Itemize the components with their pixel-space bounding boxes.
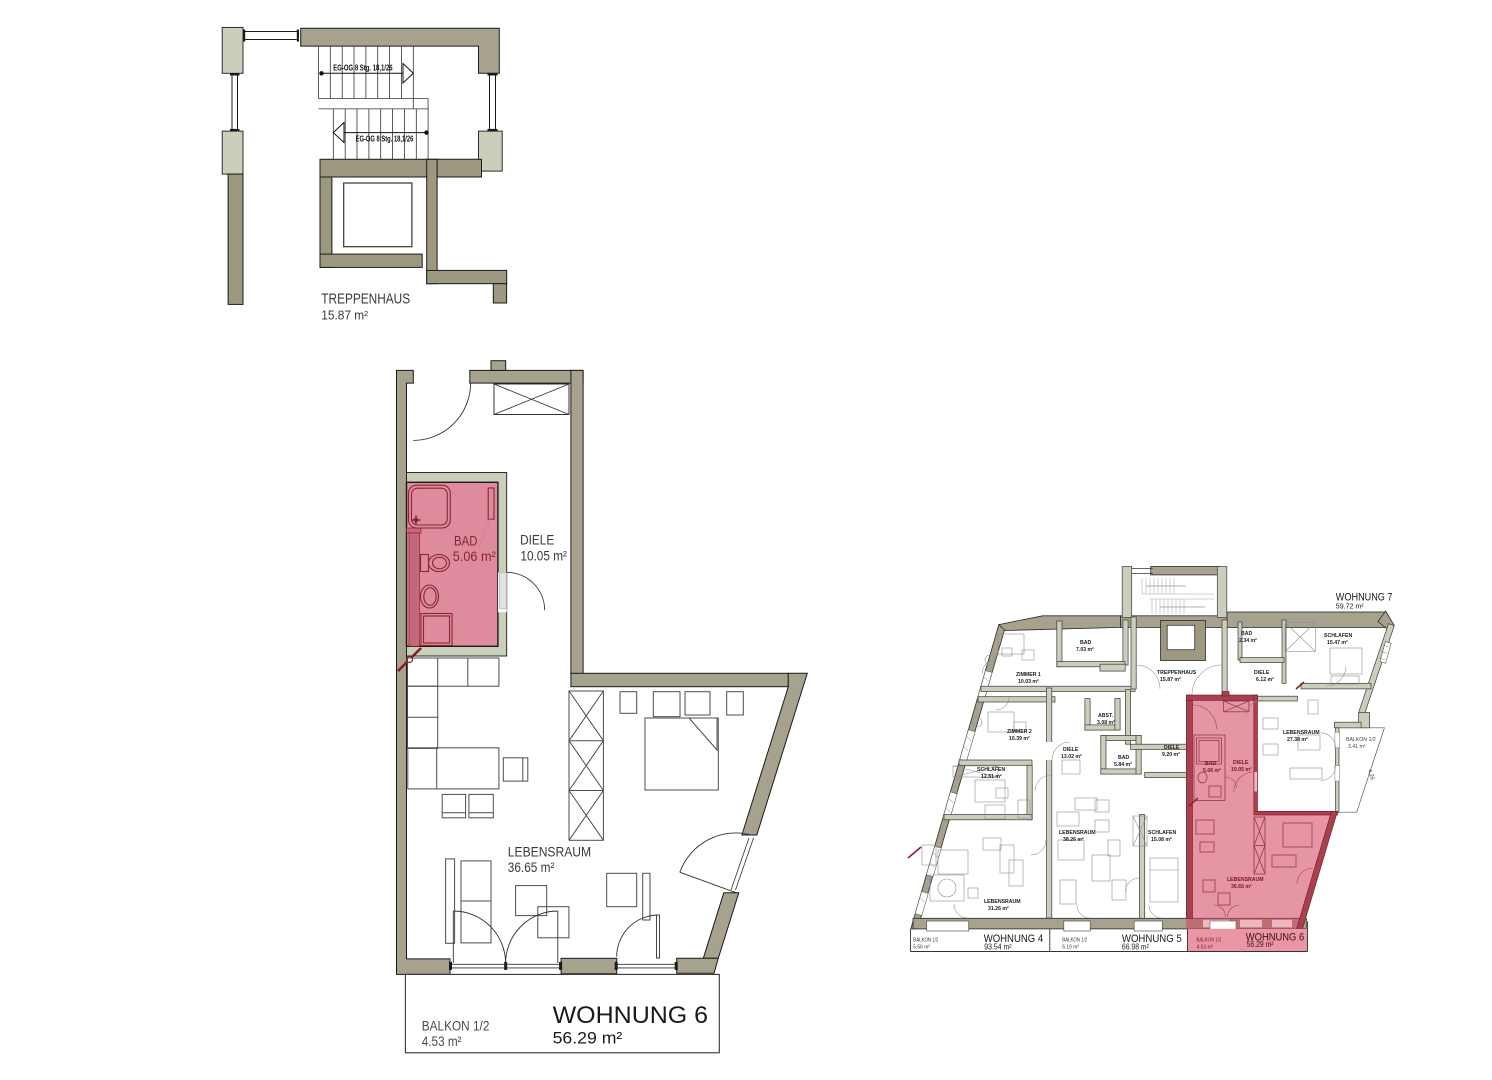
svg-text:66.98 m²: 66.98 m² bbox=[1122, 943, 1149, 952]
svg-text:BAD: BAD bbox=[454, 534, 478, 549]
svg-text:DIELE: DIELE bbox=[1254, 670, 1270, 676]
svg-text:15.87 m²: 15.87 m² bbox=[1160, 677, 1181, 683]
svg-text:ZIMMER 1: ZIMMER 1 bbox=[1016, 672, 1041, 678]
svg-text:38.26 m²: 38.26 m² bbox=[1063, 837, 1084, 843]
svg-text:5.10 m²: 5.10 m² bbox=[1062, 945, 1079, 951]
svg-text:36.65 m²: 36.65 m² bbox=[1231, 884, 1252, 890]
svg-text:5.06 m²: 5.06 m² bbox=[1203, 768, 1221, 774]
svg-text:BAD: BAD bbox=[1080, 640, 1091, 646]
svg-text:LEBENSRAUM: LEBENSRAUM bbox=[508, 845, 591, 860]
svg-text:15.08 m²: 15.08 m² bbox=[1151, 837, 1172, 843]
svg-text:12.51 m²: 12.51 m² bbox=[981, 774, 1002, 780]
svg-text:56.29 m²: 56.29 m² bbox=[1247, 940, 1274, 949]
svg-text:LEBENSRAUM: LEBENSRAUM bbox=[984, 899, 1021, 905]
svg-text:BALKON 1/2: BALKON 1/2 bbox=[913, 938, 938, 944]
svg-text:BALKON 1/2: BALKON 1/2 bbox=[422, 1018, 490, 1033]
svg-text:BAD: BAD bbox=[1205, 761, 1216, 767]
svg-text:27.38 m²: 27.38 m² bbox=[1287, 737, 1308, 743]
svg-text:31.26 m²: 31.26 m² bbox=[988, 906, 1009, 912]
svg-text:ZIMMER 2: ZIMMER 2 bbox=[1007, 729, 1032, 735]
svg-text:BALKON 1/2: BALKON 1/2 bbox=[1346, 737, 1376, 743]
svg-text:TREPPENHAUS: TREPPENHAUS bbox=[321, 291, 410, 307]
svg-text:WOHNUNG 6: WOHNUNG 6 bbox=[553, 1002, 709, 1029]
svg-text:ABST.: ABST. bbox=[1098, 713, 1114, 719]
svg-text:6.12 m²: 6.12 m² bbox=[1256, 677, 1274, 683]
svg-text:BALKON 1/2: BALKON 1/2 bbox=[1062, 938, 1087, 944]
svg-text:3.41 m²: 3.41 m² bbox=[1348, 744, 1366, 750]
svg-text:93.54 m²: 93.54 m² bbox=[984, 943, 1012, 952]
svg-text:7.03 m²: 7.03 m² bbox=[1076, 647, 1094, 653]
svg-text:DIELE: DIELE bbox=[520, 533, 554, 548]
svg-text:5.56 m²: 5.56 m² bbox=[913, 945, 930, 951]
svg-text:SCHLAFEN: SCHLAFEN bbox=[1324, 633, 1352, 639]
svg-text:BAD: BAD bbox=[1241, 631, 1252, 637]
svg-text:LEBENSRAUM: LEBENSRAUM bbox=[1283, 730, 1320, 736]
svg-text:4.53 m²: 4.53 m² bbox=[1197, 945, 1214, 951]
svg-text:56.29 m²: 56.29 m² bbox=[553, 1028, 623, 1047]
svg-text:LEBENSRAUM: LEBENSRAUM bbox=[1059, 830, 1096, 836]
svg-text:10.03 m²: 10.03 m² bbox=[1018, 679, 1039, 685]
svg-text:10.39 m²: 10.39 m² bbox=[1009, 736, 1030, 742]
svg-text:9.20 m²: 9.20 m² bbox=[1162, 752, 1180, 758]
svg-text:DIELE: DIELE bbox=[1233, 760, 1249, 766]
svg-text:BAD: BAD bbox=[1118, 755, 1129, 761]
svg-text:SCHLAFEN: SCHLAFEN bbox=[977, 767, 1005, 773]
svg-text:LEBENSRAUM: LEBENSRAUM bbox=[1227, 877, 1264, 883]
svg-text:10.05 m²: 10.05 m² bbox=[1231, 767, 1252, 773]
svg-text:15.47 m²: 15.47 m² bbox=[1327, 640, 1348, 646]
svg-text:TREPPENHAUS: TREPPENHAUS bbox=[1157, 670, 1197, 676]
svg-text:59.72 m²: 59.72 m² bbox=[1336, 602, 1364, 611]
svg-text:EG-OG 8 Stg. 18,1/26: EG-OG 8 Stg. 18,1/26 bbox=[333, 62, 392, 72]
svg-text:EG-OG 8 Stg. 18,1/26: EG-OG 8 Stg. 18,1/26 bbox=[356, 134, 414, 144]
svg-text:5.06 m²: 5.06 m² bbox=[453, 549, 496, 564]
svg-text:36.65 m²: 36.65 m² bbox=[508, 860, 555, 875]
svg-text:BALKON 1/2: BALKON 1/2 bbox=[1197, 938, 1222, 944]
svg-text:15.87 m²: 15.87 m² bbox=[321, 307, 368, 322]
svg-text:2.34 m²: 2.34 m² bbox=[1239, 638, 1257, 644]
svg-text:SCHLAFEN: SCHLAFEN bbox=[1148, 830, 1176, 836]
svg-text:4.53 m²: 4.53 m² bbox=[422, 1034, 462, 1049]
svg-text:DIELE: DIELE bbox=[1164, 745, 1180, 751]
svg-text:5.84 m²: 5.84 m² bbox=[1114, 762, 1132, 768]
svg-text:3.08 m²: 3.08 m² bbox=[1097, 720, 1115, 726]
svg-text:DIELE: DIELE bbox=[1063, 747, 1079, 753]
svg-text:10.05 m²: 10.05 m² bbox=[520, 548, 567, 563]
svg-text:13.02 m²: 13.02 m² bbox=[1061, 754, 1082, 760]
